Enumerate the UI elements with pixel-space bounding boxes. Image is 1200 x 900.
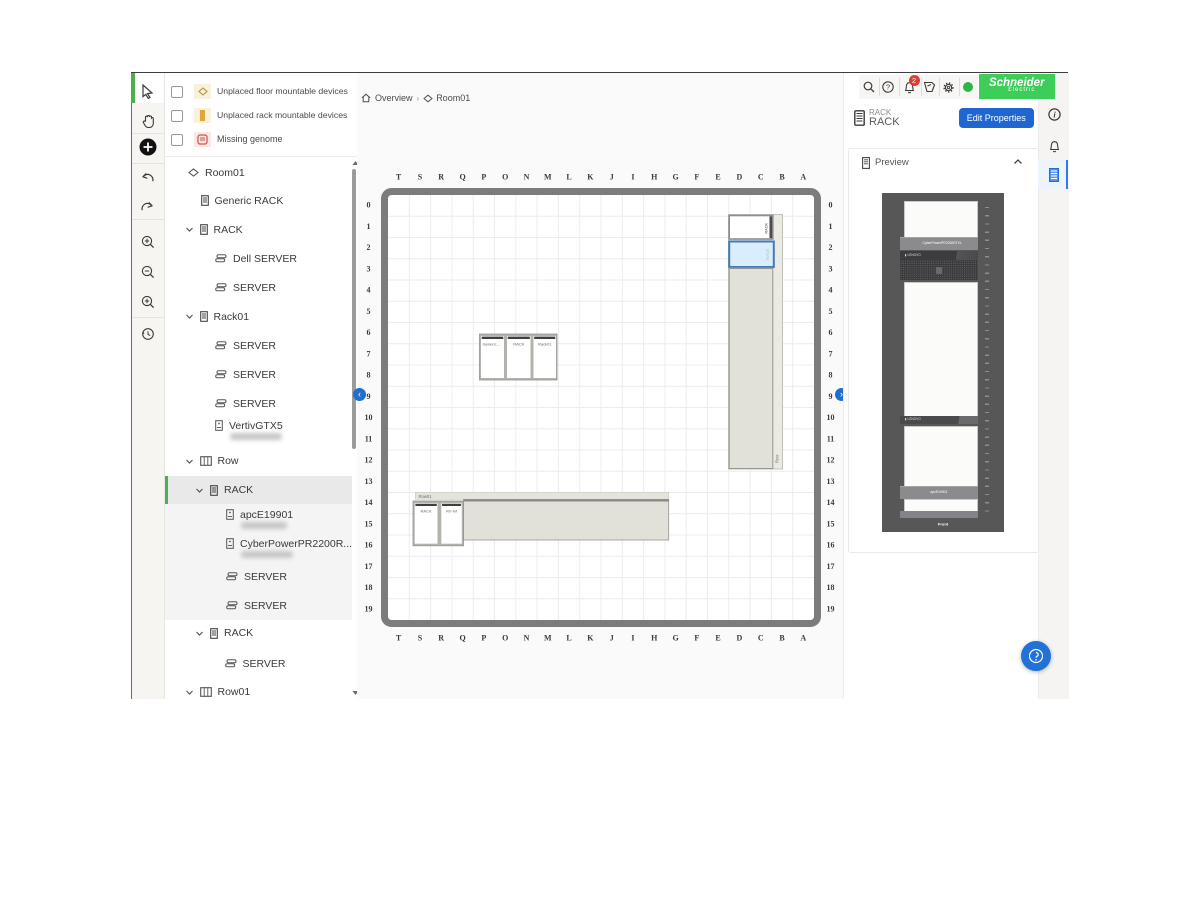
svg-text:6: 6: [829, 328, 833, 337]
svg-text:S: S: [418, 634, 423, 643]
svg-text:I: I: [631, 173, 634, 182]
svg-text:F: F: [694, 634, 699, 643]
svg-text:16: 16: [365, 541, 373, 550]
svg-text:O: O: [502, 634, 508, 643]
svg-text:RACK: RACK: [765, 222, 769, 233]
svg-text:B: B: [779, 634, 785, 643]
svg-text:F: F: [694, 173, 699, 182]
svg-text:2: 2: [829, 243, 833, 252]
svg-text:1: 1: [829, 222, 833, 231]
svg-text:T: T: [396, 173, 402, 182]
svg-text:Row01: Row01: [419, 494, 433, 499]
svg-text:T: T: [396, 634, 402, 643]
svg-text:P: P: [481, 173, 486, 182]
svg-text:7: 7: [367, 349, 371, 358]
svg-text:i: i: [1053, 109, 1056, 119]
svg-text:C: C: [758, 173, 764, 182]
svg-text:18: 18: [827, 583, 835, 592]
svg-text:J: J: [610, 634, 614, 643]
svg-text:D: D: [737, 173, 743, 182]
svg-text:A: A: [800, 173, 806, 182]
svg-text:1: 1: [367, 222, 371, 231]
svg-text:RACK: RACK: [421, 509, 432, 514]
svg-text:10: 10: [365, 413, 373, 422]
svg-text:H: H: [651, 634, 658, 643]
svg-text:O: O: [502, 173, 508, 182]
svg-text:19: 19: [827, 604, 835, 613]
svg-text:E: E: [715, 173, 720, 182]
svg-text:3: 3: [829, 264, 833, 273]
svg-text:17: 17: [365, 562, 373, 571]
svg-text:Generic...: Generic...: [483, 342, 500, 347]
svg-text:14: 14: [365, 498, 373, 507]
svg-text:5: 5: [367, 307, 371, 316]
svg-text:0: 0: [829, 201, 833, 210]
svg-text:E: E: [715, 634, 720, 643]
svg-text:R: R: [438, 173, 444, 182]
svg-text:11: 11: [827, 434, 835, 443]
svg-text:12: 12: [827, 456, 835, 465]
svg-text:13: 13: [365, 477, 373, 486]
svg-text:?: ?: [886, 83, 890, 92]
svg-text:RV-Inf: RV-Inf: [446, 509, 458, 514]
svg-text:3: 3: [367, 264, 371, 273]
svg-text:12: 12: [365, 456, 373, 465]
svg-text:RACK: RACK: [765, 248, 770, 260]
svg-text:J: J: [610, 173, 614, 182]
svg-text:16: 16: [827, 541, 835, 550]
svg-text:13: 13: [827, 477, 835, 486]
svg-text:9: 9: [367, 392, 371, 401]
svg-text:15: 15: [365, 519, 373, 528]
svg-text:RACK: RACK: [513, 342, 524, 347]
svg-text:S: S: [418, 173, 423, 182]
svg-text:L: L: [566, 173, 571, 182]
svg-text:D: D: [737, 634, 743, 643]
svg-text:10: 10: [827, 413, 835, 422]
svg-text:18: 18: [365, 583, 373, 592]
svg-text:Row: Row: [775, 454, 780, 463]
svg-text:Rack01: Rack01: [538, 342, 552, 347]
svg-text:19: 19: [365, 604, 373, 613]
svg-text:K: K: [587, 634, 594, 643]
svg-text:L: L: [566, 634, 571, 643]
svg-text:9: 9: [829, 392, 833, 401]
svg-text:B: B: [779, 173, 785, 182]
svg-text:15: 15: [827, 519, 835, 528]
svg-text:H: H: [651, 173, 658, 182]
svg-text:2: 2: [367, 243, 371, 252]
svg-text:R: R: [438, 634, 444, 643]
svg-text:6: 6: [367, 328, 371, 337]
svg-text:Q: Q: [459, 173, 465, 182]
svg-text:N: N: [524, 173, 530, 182]
svg-text:G: G: [672, 173, 678, 182]
svg-text:4: 4: [367, 286, 371, 295]
svg-text:Q: Q: [459, 634, 465, 643]
svg-text:4: 4: [829, 286, 833, 295]
svg-text:0: 0: [367, 201, 371, 210]
svg-text:M: M: [544, 173, 552, 182]
svg-text:11: 11: [365, 434, 373, 443]
svg-text:17: 17: [827, 562, 835, 571]
svg-text:A: A: [800, 634, 806, 643]
svg-text:7: 7: [829, 349, 833, 358]
svg-text:5: 5: [829, 307, 833, 316]
svg-text:P: P: [481, 634, 486, 643]
svg-text:8: 8: [829, 371, 833, 380]
svg-text:8: 8: [367, 371, 371, 380]
svg-text:I: I: [631, 634, 634, 643]
svg-text:M: M: [544, 634, 552, 643]
svg-text:K: K: [587, 173, 594, 182]
svg-text:G: G: [672, 634, 678, 643]
svg-text:C: C: [758, 634, 764, 643]
svg-text:N: N: [524, 634, 530, 643]
svg-text:14: 14: [827, 498, 835, 507]
